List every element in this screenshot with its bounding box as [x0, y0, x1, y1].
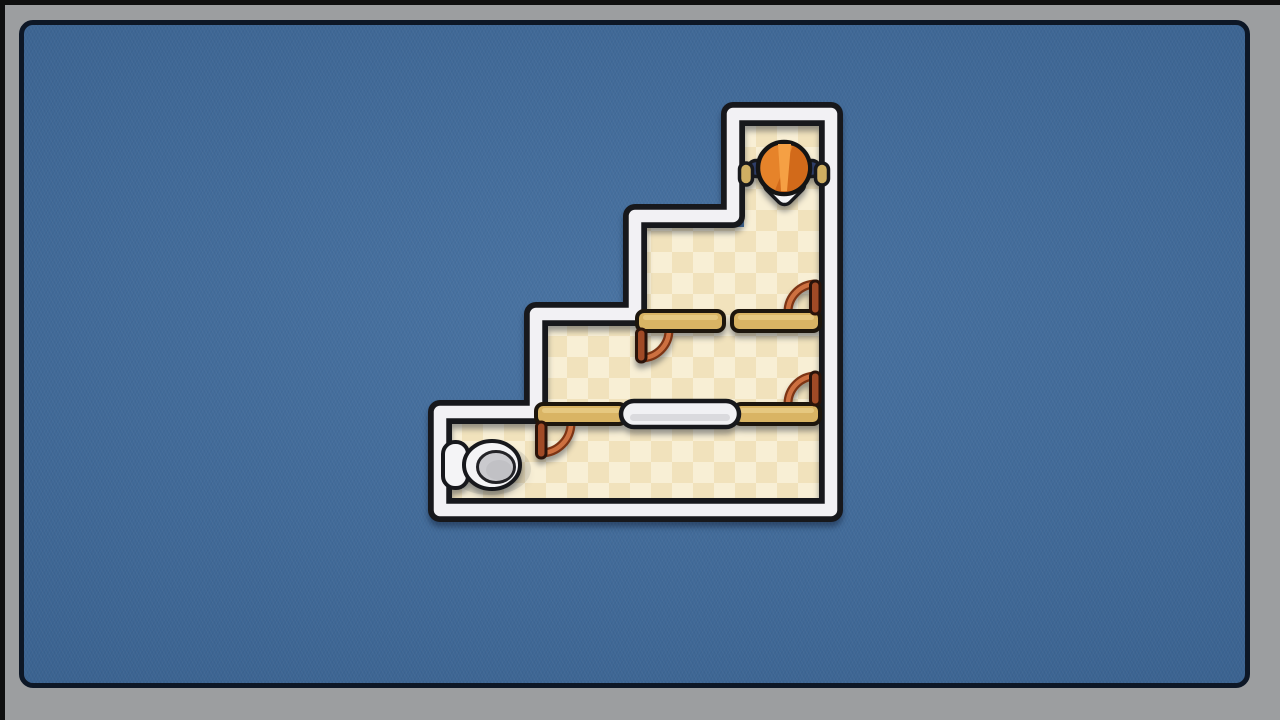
door-floor3-left[interactable]	[637, 329, 647, 362]
ledge-floor2-left	[536, 404, 626, 424]
ledge-floor2-right	[734, 404, 820, 424]
toilet-goal[interactable]	[443, 441, 531, 495]
worker-character[interactable]	[740, 142, 829, 208]
worker-hand-left	[740, 163, 753, 185]
ledge-floor3-right	[732, 311, 820, 331]
movable-plug[interactable]	[621, 401, 739, 427]
toilet-seat-shade	[486, 460, 512, 480]
movable-plug-shade	[630, 414, 730, 421]
door-floor3-right[interactable]	[811, 281, 821, 314]
door-floor2-left[interactable]	[537, 422, 547, 458]
level-canvas	[0, 0, 1280, 720]
door-floor2-right[interactable]	[811, 372, 821, 405]
worker-hand-right	[816, 163, 829, 185]
ledge-floor3-left	[637, 311, 724, 331]
ledge-floor3-left-highlight	[643, 315, 718, 320]
ledge-floor3-right-highlight	[738, 315, 814, 320]
game-screen	[0, 0, 1280, 720]
ledge-floor2-right-highlight	[740, 408, 814, 413]
ledge-floor2-left-highlight	[542, 408, 620, 413]
